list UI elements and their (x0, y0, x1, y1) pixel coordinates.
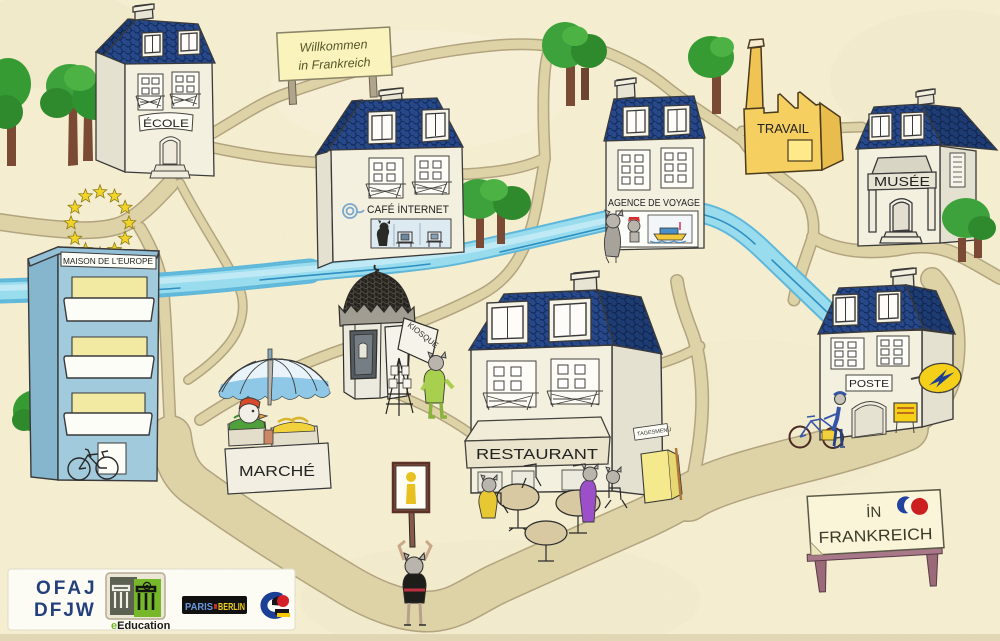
svg-text:MUSÉE: MUSÉE (874, 174, 930, 189)
svg-text:AGENCE DE VOYAGE: AGENCE DE VOYAGE (608, 198, 700, 209)
svg-text:PARIS: PARIS (185, 602, 213, 613)
svg-text:RESTAURANT: RESTAURANT (476, 446, 598, 463)
svg-text:BERLIN: BERLIN (218, 602, 245, 613)
svg-text:POSTE: POSTE (849, 379, 889, 390)
svg-text:TRAVAIL: TRAVAIL (757, 121, 809, 136)
svg-text:İN: İN (866, 503, 882, 522)
svg-text:OFAJ: OFAJ (36, 578, 98, 599)
svg-text:MARCHÉ: MARCHÉ (239, 463, 315, 480)
svg-text:eEducation: eEducation (111, 620, 171, 632)
svg-text:MAISON DE L'EUROPE: MAISON DE L'EUROPE (63, 256, 153, 266)
svg-text:CAFÉ İNTERNET: CAFÉ İNTERNET (367, 203, 449, 216)
svg-text:ÉCOLE: ÉCOLE (143, 117, 189, 130)
svg-text:DFJW: DFJW (34, 600, 96, 621)
